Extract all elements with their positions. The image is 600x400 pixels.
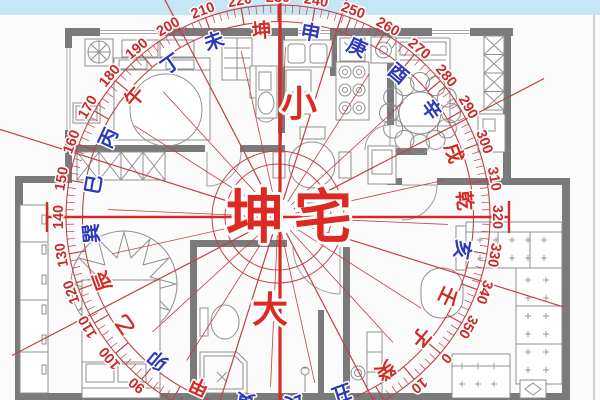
degree-label: 140: [51, 205, 67, 229]
photo-right-edge: [593, 15, 595, 400]
room-size-label-small: 小: [281, 84, 317, 125]
degree-label: 320: [489, 205, 505, 229]
window-bedroom2-top: [432, 28, 470, 36]
sofa-right-section: [516, 268, 562, 384]
window-master-left: [65, 48, 72, 130]
house-type-label: 坤宅: [226, 183, 362, 251]
mountain-char: 巳: [81, 173, 107, 196]
dining-table: [289, 142, 335, 188]
mountain-char: 巽: [79, 222, 104, 244]
mountain-char: 亥: [449, 238, 475, 261]
mountain-char: 坤: [251, 18, 272, 43]
wall-bath-partition: [318, 310, 324, 393]
armchair: [452, 354, 510, 398]
wall-master-bottom: [72, 145, 205, 152]
washing-machine: [371, 37, 396, 63]
toilet-bowl: [211, 305, 239, 339]
sofa-back: [466, 222, 562, 232]
closet-x-column: [484, 36, 504, 110]
degree-label: 230: [266, 0, 290, 6]
wall-bath-left: [190, 247, 197, 393]
floorplan-compass-image: 9010011012013014015016017018019020021022…: [0, 0, 600, 400]
mountain-char: 乾: [452, 190, 477, 212]
toilet-tank: [200, 308, 208, 336]
room-size-label-big: 大: [252, 290, 288, 331]
window-master-top: [100, 28, 158, 36]
wall-right-lower: [562, 185, 570, 400]
fengshui-floorplan-photo: 9010011012013014015016017018019020021022…: [0, 0, 600, 400]
mountain-char: 申: [299, 20, 322, 46]
ceiling-fan-blades: [88, 41, 110, 63]
wall-bath-right: [343, 247, 350, 393]
